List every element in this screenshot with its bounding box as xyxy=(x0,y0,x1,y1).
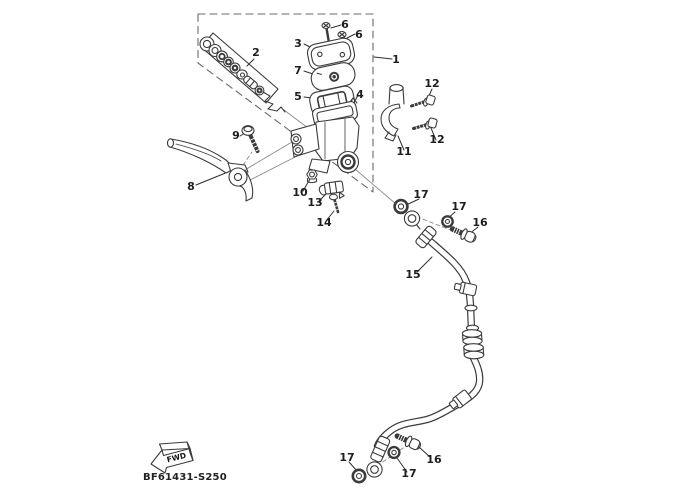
handlebar-clamp xyxy=(381,85,404,141)
callout-17d: 17 xyxy=(401,467,416,480)
clamp-bolt-12b xyxy=(414,118,438,130)
callout-16b: 16 xyxy=(426,453,442,466)
washer-17d xyxy=(389,447,400,458)
callout-6b: 6 xyxy=(355,28,363,41)
callout-11: 11 xyxy=(396,145,411,158)
brake-lever xyxy=(168,139,253,201)
callout-12b: 12 xyxy=(429,133,444,146)
callout-13: 13 xyxy=(307,196,322,209)
cap-screw-6a xyxy=(322,23,330,41)
callout-16a: 16 xyxy=(472,216,488,229)
callout-17a: 17 xyxy=(413,188,428,201)
lever-pivot-bolt xyxy=(242,126,260,151)
return-spring xyxy=(263,92,285,112)
piston-repair-kit xyxy=(200,33,285,112)
callout-12a: 12 xyxy=(424,77,439,90)
switch-screw xyxy=(330,194,340,212)
washer-17c xyxy=(353,470,365,482)
washer-17b xyxy=(442,216,452,226)
callout-3: 3 xyxy=(294,37,302,50)
brake-hose xyxy=(367,211,484,477)
exploded-parts-diagram: 1 2 3 4 5 6 6 7 8 9 10 11 12 12 13 14 15… xyxy=(0,0,698,494)
callout-14: 14 xyxy=(316,216,332,229)
master-cylinder-body xyxy=(291,101,359,173)
callout-5: 5 xyxy=(294,90,302,103)
callout-10: 10 xyxy=(292,186,308,199)
callout-17b: 17 xyxy=(451,200,466,213)
drawing-code: BF61431-S250 xyxy=(143,472,227,483)
callout-6a: 6 xyxy=(341,18,349,31)
callout-2: 2 xyxy=(252,46,260,59)
callout-17c: 17 xyxy=(339,451,354,464)
locknut xyxy=(307,170,317,183)
washer-17a xyxy=(395,200,408,213)
callout-4: 4 xyxy=(356,88,364,101)
diagram-canvas: 1 2 3 4 5 6 6 7 8 9 10 11 12 12 13 14 15… xyxy=(0,0,698,494)
callout-15: 15 xyxy=(405,268,420,281)
callout-1: 1 xyxy=(392,53,400,66)
callout-9: 9 xyxy=(232,129,240,142)
clamp-bolt-12a xyxy=(412,94,436,106)
callout-7: 7 xyxy=(294,64,302,77)
callout-8: 8 xyxy=(187,180,195,193)
